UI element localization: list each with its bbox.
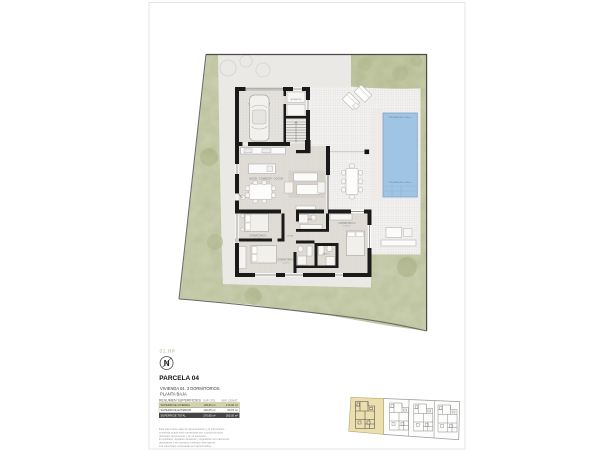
svg-text:138,90 m²: 138,90 m²: [203, 403, 215, 407]
svg-text:90,15 m²: 90,15 m²: [227, 408, 238, 412]
svg-text:SUP. CONST.: SUP. CONST.: [221, 398, 238, 402]
svg-text:El mobiliario, aparatos sanita: El mobiliario, aparatos sanitarios y veg…: [159, 437, 230, 441]
svg-text:12,40 m²: 12,40 m²: [343, 225, 351, 228]
svg-text:SUPERFICIE EXTERIOR: SUPERFICIE EXTERIOR: [161, 408, 192, 412]
svg-text:BAÑO 1: BAÑO 1: [307, 218, 315, 221]
svg-text:SUPERFICIE TOTAL: SUPERFICIE TOTAL: [161, 414, 187, 418]
svg-text:contenida puede sufrir variaci: contenida puede sufrir variaciones por m…: [159, 430, 224, 434]
svg-text:PISCINA 8,00 x 3,50 m: PISCINA 8,00 x 3,50 m: [389, 181, 412, 184]
svg-text:VIVIENDA 04. 3 DORMITORIOS.: VIVIENDA 04. 3 DORMITORIOS.: [160, 386, 221, 391]
svg-text:BAÑO 2: BAÑO 2: [322, 252, 330, 255]
svg-text:RESUMEN SUPERFICIES: RESUMEN SUPERFICIES: [159, 399, 201, 403]
svg-text:SUP. ÚTIL: SUP. ÚTIL: [203, 398, 216, 402]
svg-text:DORMITORIO P: DORMITORIO P: [277, 260, 295, 262]
svg-text:270,95 m²: 270,95 m²: [203, 414, 215, 418]
svg-text:265,05 m²: 265,05 m²: [226, 414, 238, 418]
svg-text:13,10 m²: 13,10 m²: [282, 261, 290, 264]
svg-text:decorativos y se muestran a ef: decorativos y se muestran a efectos info…: [159, 441, 216, 445]
svg-text:01 HP: 01 HP: [160, 349, 176, 355]
svg-text:derivados del proyecto y de su: derivados del proyecto y de su ejecución…: [159, 434, 207, 438]
svg-text:DORMITORIO 1: DORMITORIO 1: [250, 235, 268, 237]
svg-text:Este plano tiene valor de repr: Este plano tiene valor de representación…: [159, 427, 225, 431]
svg-text:SUPERFICIE VIVIENDA: SUPERFICIE VIVIENDA: [161, 403, 191, 407]
svg-text:ALMACÉN: ALMACÉN: [291, 98, 302, 101]
svg-text:DORMITORIO 2: DORMITORIO 2: [339, 223, 357, 225]
svg-text:PISCINA 8,00 x 3,50 m: PISCINA 8,00 x 3,50 m: [389, 116, 412, 119]
svg-text:PLANTA BAJA: PLANTA BAJA: [160, 392, 187, 397]
svg-text:PARCELA 04: PARCELA 04: [159, 375, 199, 382]
svg-text:132,05 m²: 132,05 m²: [203, 408, 215, 412]
svg-text:SALÓN - COMEDOR - COCINA: SALÓN - COMEDOR - COCINA: [249, 178, 284, 181]
svg-text:174,90 m²: 174,90 m²: [226, 403, 238, 407]
svg-text:DISTR.: DISTR.: [287, 236, 294, 238]
svg-text:Las superficies expresadas son: Las superficies expresadas son aproximad…: [159, 444, 212, 448]
